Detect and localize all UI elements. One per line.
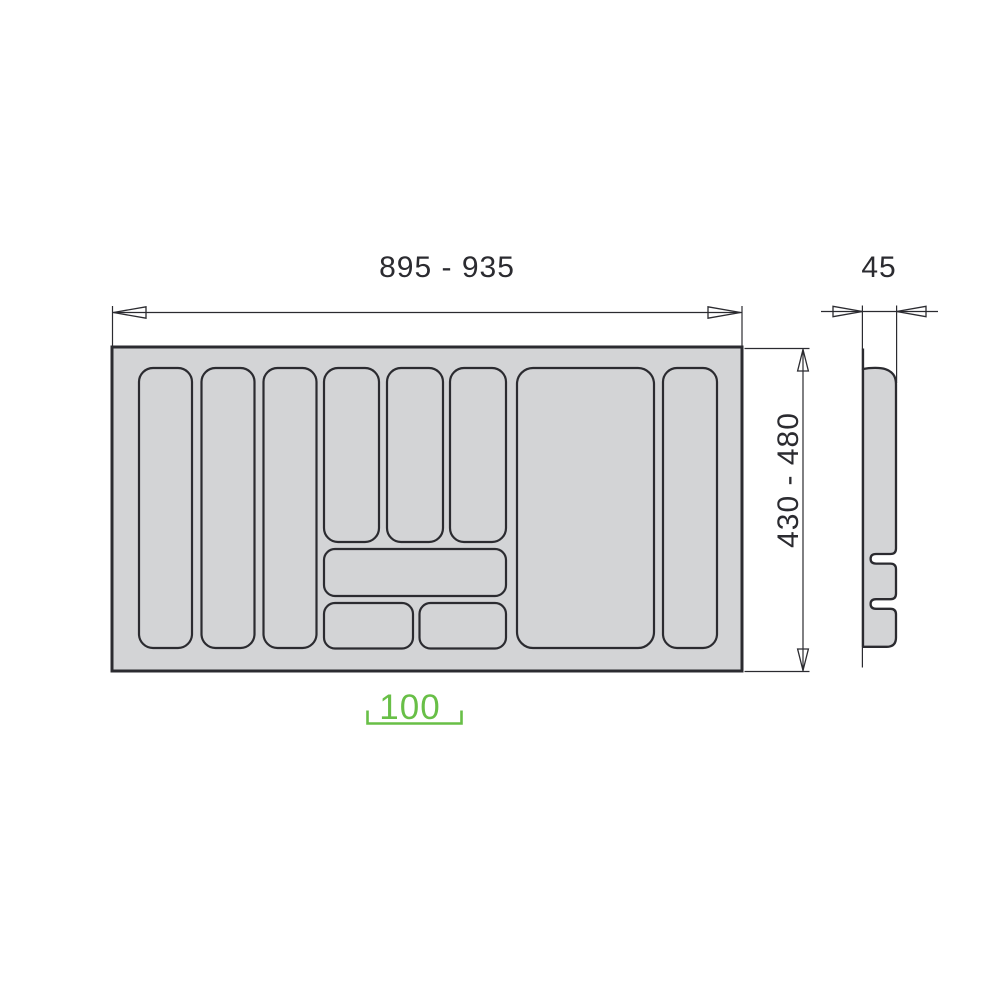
compartment-large [517, 368, 654, 648]
depth-dimension-label: 45 [861, 251, 896, 284]
compartment-small-2 [420, 603, 507, 649]
height-dimension: 430 - 480 [745, 349, 810, 672]
width-dimension: 895 - 935 [113, 251, 743, 346]
compartment-medium-3 [450, 368, 506, 542]
compartment-small-1 [324, 603, 413, 649]
compartment-wide [324, 549, 506, 596]
compartment-medium-1 [324, 368, 379, 542]
cutlery-tray-drawing: 895 - 935 430 - 480 45 [0, 0, 1000, 1000]
width-dimension-label: 895 - 935 [379, 251, 515, 284]
side-profile-shape [863, 368, 896, 647]
compartment-tall-2 [202, 368, 255, 648]
tray-top-view [112, 347, 742, 671]
cabinet-size-mark: 100 [368, 688, 462, 727]
height-dimension-label: 430 - 480 [772, 412, 805, 548]
compartment-tall-right [663, 368, 717, 648]
cabinet-size-label: 100 [379, 688, 440, 727]
side-profile-view [862, 306, 896, 668]
compartment-tall-1 [139, 368, 192, 648]
depth-dimension: 45 [821, 251, 938, 317]
compartment-medium-2 [387, 368, 443, 542]
technical-drawing-page: 895 - 935 430 - 480 45 [0, 0, 1000, 1000]
compartment-tall-3 [264, 368, 317, 648]
